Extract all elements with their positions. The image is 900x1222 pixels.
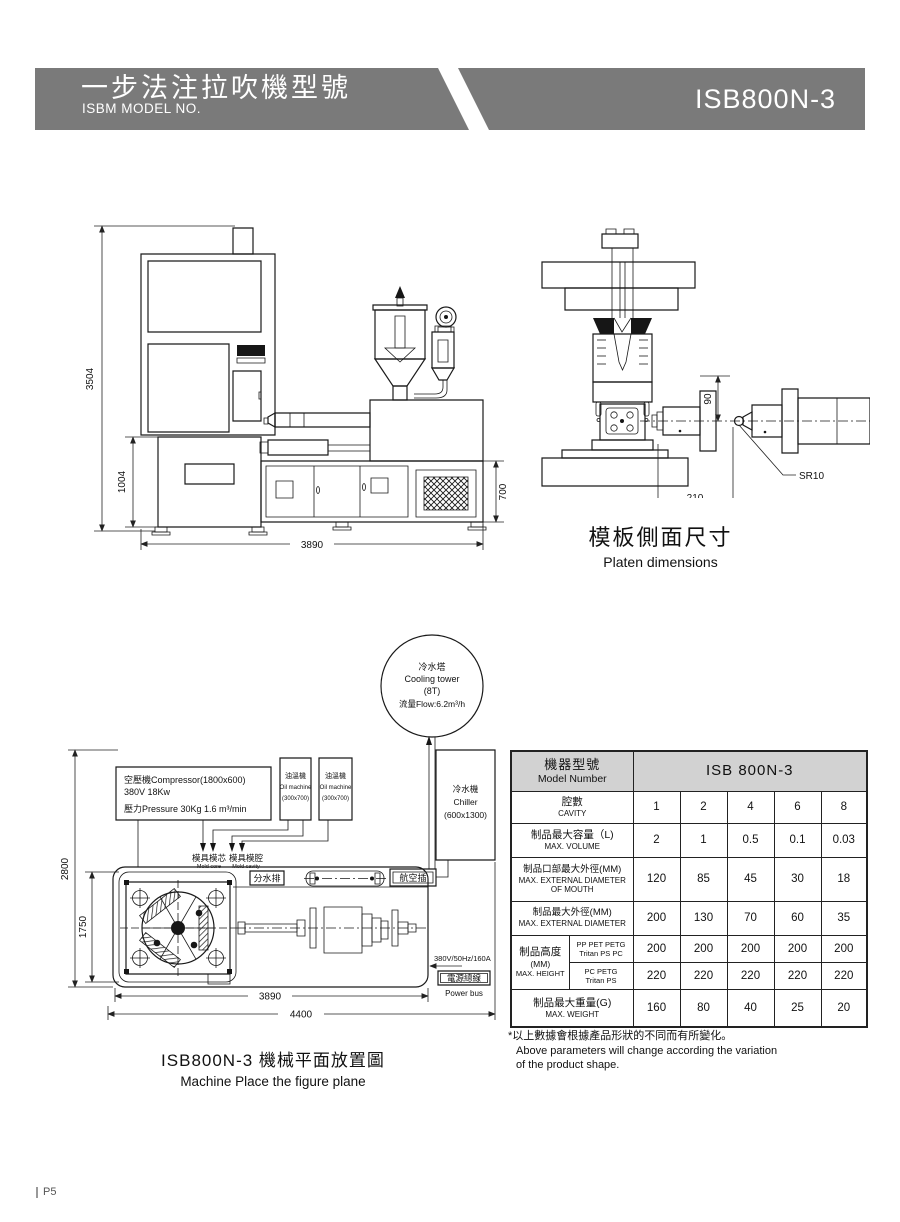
cell: 45 bbox=[727, 857, 774, 901]
rotary-table bbox=[120, 880, 236, 976]
aviation-plug-label: 航空插 bbox=[399, 872, 426, 883]
power-bus-label-en: Power bus bbox=[445, 989, 483, 998]
extdia-label-en: MAX. EXTERNAL DIAMETER bbox=[513, 919, 632, 929]
dim-3890: 3890 bbox=[301, 540, 324, 551]
platen-side-view-drawing: 90 210 SR10 bbox=[540, 228, 870, 498]
cell: 2 bbox=[680, 791, 727, 823]
dim-1004: 1004 bbox=[117, 470, 128, 493]
dim-4400: 4400 bbox=[290, 1010, 313, 1021]
cooling-tower: 冷水塔 Cooling tower (8T) 流量Flow:6.2m³/h bbox=[381, 635, 483, 869]
platen-dimensions: 90 210 SR10 bbox=[658, 376, 824, 498]
table-footnote: *以上數據會根據產品形狀的不同而有所變化。 Above parameters w… bbox=[508, 1029, 880, 1072]
model-label-en: Model Number bbox=[513, 773, 632, 786]
page-title-en: ISBM MODEL NO. bbox=[35, 103, 469, 114]
injection-screw-plan bbox=[236, 907, 426, 953]
cell: 130 bbox=[680, 901, 727, 935]
platen-caption-en: Platen dimensions bbox=[553, 554, 768, 570]
height-label-zh: 制品高度 bbox=[513, 946, 568, 959]
oil-machine-2: 油溫機 Oil machine (300x700) bbox=[319, 758, 352, 820]
mouth-label-en: MAX. EXTERNAL DIAMETER OF MOUTH bbox=[513, 876, 632, 895]
oil-machine-2-en: Oil machine bbox=[320, 785, 352, 791]
dim-3890-plan: 3890 bbox=[259, 992, 282, 1003]
compressor-box: 空壓機Compressor(1800x600) 380V 18Kw 壓力Pres… bbox=[116, 767, 271, 820]
footnote-zh: *以上數據會根據產品形狀的不同而有所變化。 bbox=[508, 1029, 880, 1044]
cooling-tower-flow: 流量Flow:6.2m³/h bbox=[399, 699, 465, 709]
power-supply-labels: 380V/50Hz/160A 電源總線 Power bus bbox=[430, 954, 491, 998]
cell: 220 bbox=[680, 962, 727, 989]
volume-label-zh: 制品最大容量（L) bbox=[513, 829, 632, 842]
weight-label-en: MAX. WEIGHT bbox=[513, 1010, 632, 1020]
cell: 220 bbox=[821, 962, 867, 989]
cell: 85 bbox=[680, 857, 727, 901]
cell: 220 bbox=[774, 962, 821, 989]
compressor-line1: 空壓機Compressor(1800x600) bbox=[124, 774, 246, 785]
material-1-line2: Tritan PS PC bbox=[571, 949, 632, 958]
cell: 200 bbox=[727, 935, 774, 962]
height-label-cell: 制品高度 (MM) MAX. HEIGHT bbox=[511, 935, 569, 989]
cell: 200 bbox=[774, 935, 821, 962]
volume-label-en: MAX. VOLUME bbox=[513, 842, 632, 852]
cavity-label-zh: 腔數 bbox=[513, 796, 632, 809]
header-banner-left: 一步法注拉吹機型號 ISBM MODEL NO. bbox=[35, 68, 469, 130]
cell: 40 bbox=[727, 989, 774, 1027]
model-number: ISB800N-3 bbox=[458, 68, 865, 130]
cell: 20 bbox=[821, 989, 867, 1027]
cell: 120 bbox=[633, 857, 680, 901]
table-row-height-1: 制品高度 (MM) MAX. HEIGHT PP PET PETG Tritan… bbox=[511, 935, 867, 962]
footnote-en-1: Above parameters will change according t… bbox=[508, 1044, 880, 1058]
cooling-tower-capacity: (8T) bbox=[424, 686, 441, 696]
cell: 220 bbox=[633, 962, 680, 989]
hopper-dryer bbox=[373, 286, 456, 400]
oil-machine-1: 油溫機 Oil machine (300x700) bbox=[280, 758, 312, 820]
table-row-cavity: 腔數 CAVITY 1 2 4 6 8 bbox=[511, 791, 867, 823]
model-label-zh: 機器型號 bbox=[513, 757, 632, 773]
footnote-en-2: of the product shape. bbox=[508, 1058, 880, 1072]
dim-700: 700 bbox=[498, 483, 509, 500]
cooling-tower-label-en: Cooling tower bbox=[404, 674, 459, 684]
cell: 1 bbox=[633, 791, 680, 823]
cell: 220 bbox=[727, 962, 774, 989]
cell: 200 bbox=[821, 935, 867, 962]
cell: 200 bbox=[633, 935, 680, 962]
chiller-size: (600x1300) bbox=[444, 810, 487, 820]
cell: 200 bbox=[633, 901, 680, 935]
platen-caption-zh: 模板側面尺寸 bbox=[553, 520, 768, 552]
cell: 4 bbox=[727, 791, 774, 823]
cell: 60 bbox=[774, 901, 821, 935]
oil-machine-2-zh: 油溫機 bbox=[325, 771, 346, 780]
catalog-page: 一步法注拉吹機型號 ISBM MODEL NO. ISB800N-3 bbox=[0, 0, 900, 1222]
dim-3504: 3504 bbox=[85, 367, 96, 390]
dim-90: 90 bbox=[703, 393, 714, 405]
layout-caption: ISB800N-3 機械平面放置圖 Machine Place the figu… bbox=[138, 1046, 408, 1089]
cell: 25 bbox=[774, 989, 821, 1027]
page-footer: P5 bbox=[36, 1186, 56, 1198]
height-label-unit: (MM) bbox=[513, 959, 568, 969]
machine-feet bbox=[152, 522, 486, 535]
chiller-box: 冷水機 Chiller (600x1300) bbox=[436, 750, 495, 860]
machine-layout-plan-drawing: 冷水塔 Cooling tower (8T) 流量Flow:6.2m³/h 空壓… bbox=[58, 630, 508, 1030]
height-label-en: MAX. HEIGHT bbox=[513, 969, 568, 978]
cell: 200 bbox=[680, 935, 727, 962]
cell: 0.03 bbox=[821, 823, 867, 857]
water-manifold-label: 分水排 bbox=[253, 873, 280, 884]
cell: 18 bbox=[821, 857, 867, 901]
material-2-line1: PC PETG bbox=[571, 967, 632, 976]
material-2-line2: Tritan PS bbox=[571, 976, 632, 985]
mouth-label-zh: 制品口部最大外徑(MM) bbox=[513, 864, 632, 876]
aviation-plug-box: 航空插 bbox=[390, 869, 436, 886]
layout-caption-zh: ISB800N-3 機械平面放置圖 bbox=[138, 1046, 408, 1071]
power-spec-label: 380V/50Hz/160A bbox=[434, 954, 491, 963]
machine-plan-body: 分水排 航空插 bbox=[113, 867, 436, 987]
cell: 1 bbox=[680, 823, 727, 857]
cell: 8 bbox=[821, 791, 867, 823]
dim-210: 210 bbox=[687, 493, 704, 498]
table-row-volume: 制品最大容量（L) MAX. VOLUME 2 1 0.5 0.1 0.03 bbox=[511, 823, 867, 857]
material-1-line1: PP PET PETG bbox=[571, 940, 632, 949]
cell: 30 bbox=[774, 857, 821, 901]
mold-cavity-label-zh: 模具模腔 bbox=[229, 853, 264, 863]
extdia-label-zh: 制品最大外徑(MM) bbox=[513, 907, 632, 919]
cell: 35 bbox=[821, 901, 867, 935]
table-row-model: 機器型號 Model Number ISB 800N-3 bbox=[511, 751, 867, 791]
cell: 0.1 bbox=[774, 823, 821, 857]
cell: 70 bbox=[727, 901, 774, 935]
cell: 80 bbox=[680, 989, 727, 1027]
cooling-tower-label-zh: 冷水塔 bbox=[418, 661, 445, 672]
mold-core-label-zh: 模具模芯 bbox=[192, 853, 227, 863]
page-title-zh: 一步法注拉吹機型號 bbox=[35, 68, 469, 103]
power-bus-label-zh: 電源總線 bbox=[447, 973, 482, 983]
machine-front-view-drawing: 3504 1004 3890 700 bbox=[80, 190, 510, 570]
table-row-mouth-diameter: 制品口部最大外徑(MM) MAX. EXTERNAL DIAMETER OF M… bbox=[511, 857, 867, 901]
cell: 2 bbox=[633, 823, 680, 857]
weight-label-zh: 制品最大重量(G) bbox=[513, 997, 632, 1010]
compressor-line2: 380V 18Kw bbox=[124, 787, 171, 797]
dim-1750: 1750 bbox=[78, 915, 89, 938]
cell: 160 bbox=[633, 989, 680, 1027]
water-manifold-box: 分水排 bbox=[250, 871, 284, 885]
platen-caption: 模板側面尺寸 Platen dimensions bbox=[553, 520, 768, 570]
oil-machine-1-en: Oil machine bbox=[280, 785, 312, 791]
compressor-line3: 壓力Pressure 30Kg 1.6 m³/min bbox=[124, 803, 247, 814]
page-number: P5 bbox=[43, 1186, 56, 1198]
cavity-label-en: CAVITY bbox=[513, 809, 632, 819]
model-value: ISB 800N-3 bbox=[706, 762, 794, 779]
table-row-external-diameter: 制品最大外徑(MM) MAX. EXTERNAL DIAMETER 200 13… bbox=[511, 901, 867, 935]
cell: 0.5 bbox=[727, 823, 774, 857]
footer-divider bbox=[36, 1187, 38, 1198]
platen-assembly bbox=[542, 229, 870, 486]
dim-2800: 2800 bbox=[60, 857, 71, 880]
oil-machine-1-zh: 油溫機 bbox=[285, 771, 306, 780]
machine-body bbox=[141, 228, 486, 535]
chiller-zh: 冷水機 bbox=[453, 784, 479, 794]
cell: 6 bbox=[774, 791, 821, 823]
oil-machine-2-size: (300x700) bbox=[322, 796, 349, 802]
strip-cylinder bbox=[304, 871, 388, 886]
header-banner-right: ISB800N-3 bbox=[458, 68, 865, 130]
layout-caption-en: Machine Place the figure plane bbox=[138, 1074, 408, 1089]
table-row-weight: 制品最大重量(G) MAX. WEIGHT 160 80 40 25 20 bbox=[511, 989, 867, 1027]
dim-sr10: SR10 bbox=[799, 471, 824, 482]
spec-table: 機器型號 Model Number ISB 800N-3 腔數 CAVITY 1… bbox=[510, 750, 868, 1028]
chiller-en: Chiller bbox=[453, 797, 477, 807]
oil-machine-1-size: (300x700) bbox=[282, 796, 309, 802]
